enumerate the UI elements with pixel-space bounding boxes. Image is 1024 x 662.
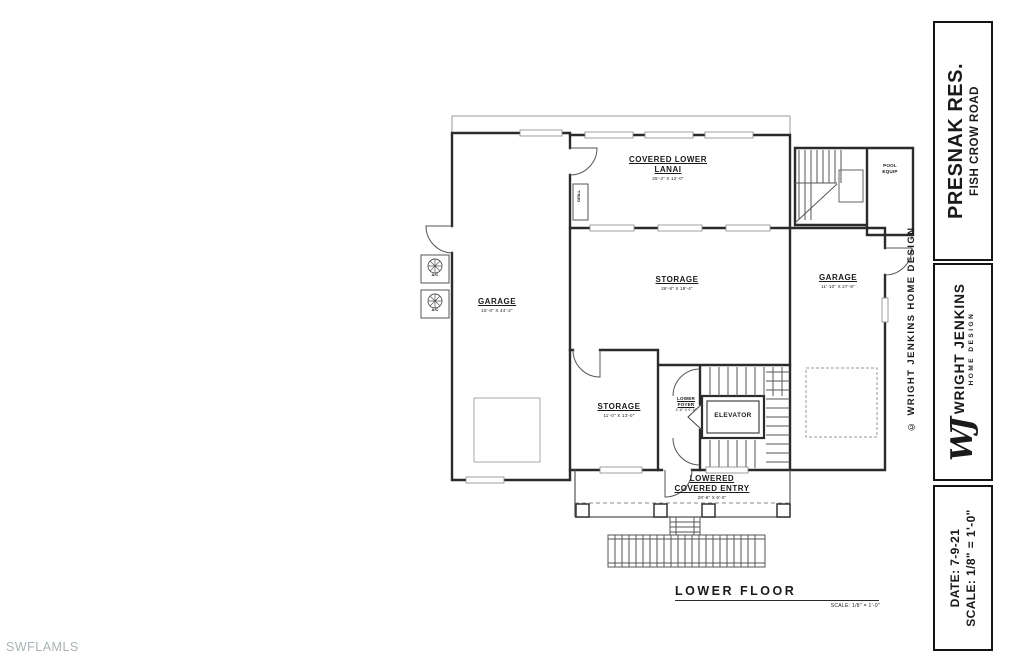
room-label-elevator: ELEVATOR [714,412,752,419]
title-block: PRESNAK RES. FISH CROW ROAD WJ WRIGHT JE… [933,21,993,651]
room-dim: 11'-10" X 27'-8" [793,284,883,289]
storage-door-arc [573,350,600,377]
room-name: STORAGE [574,402,664,412]
firm-tagline: HOME DESIGN [968,312,975,386]
ac-label: A/C [432,272,439,277]
room-dim: 15'-0" X 44'-2" [452,308,542,313]
entry-steps [608,517,765,567]
garage-side-door-arc [426,226,452,253]
room-name: GARAGE [793,273,883,283]
porch-column [654,504,667,517]
room-name: LOWERED COVERED ENTRY [672,474,752,494]
plan-title: LOWER FLOOR [675,584,879,601]
foyer-bottom-door-arc [673,438,700,465]
room-dim: 11'-0" X 13'-0" [574,413,664,418]
porch-column [702,504,715,517]
watermark: SWFLAMLS [6,640,79,654]
floor-plan-linework [0,0,1024,662]
room-dim: 28'-8" X 18'-4" [627,286,727,291]
room-name: LOWER FOYER [673,396,699,407]
room-name: GARAGE [452,297,542,307]
date-label: DATE: 7-9-21 [948,491,962,646]
plan-scale-note: SCALE: 1/8" = 1'-0" [788,603,880,609]
room-label-storage-lower: STORAGE 11'-0" X 13'-0" [574,402,664,418]
room-label-grill: GRILL [576,179,581,213]
ac-label: A/C [432,307,439,312]
room-dim: 4'-6" X 9'-0" [673,408,699,412]
room-name: COVERED LOWER LANAI [628,155,708,175]
project-name: PRESNAK RES. [945,26,968,256]
plan-title-text: LOWER FLOOR [675,584,796,598]
room-label-storage-main: STORAGE 28'-8" X 18'-4" [627,275,727,291]
room-label-entry: LOWERED COVERED ENTRY 28'-6" X 6'-0" [672,474,752,500]
room-label-lower-foyer: LOWER FOYER 4'-6" X 9'-0" [673,396,699,412]
wj-monogram-logo: WJ [948,421,978,461]
room-label-garage-left: GARAGE 15'-0" X 44'-2" [452,297,542,313]
firm-name: WRIGHT JENKINS [952,283,967,414]
copyright-text: © WRIGHT JENKINS HOME DESIGN [906,185,928,473]
scale-label: SCALE: 1/8" = 1'-0" [964,491,978,646]
lanai-door-arc [570,148,597,175]
room-dim: 28'-6" X 6'-0" [672,495,752,500]
room-dim: 25'-2" X 12'-0" [628,176,708,181]
project-address: FISH CROW ROAD [969,26,981,256]
room-name: POOL EQUIP [877,163,903,174]
garage-pads [474,368,877,462]
porch-column [576,504,589,517]
date-scale-box: DATE: 7-9-21 SCALE: 1/8" = 1'-0" [933,485,993,651]
room-label-lanai: COVERED LOWER LANAI 25'-2" X 12'-0" [628,155,708,181]
foyer-top-door-arc [673,369,700,396]
project-title-box: PRESNAK RES. FISH CROW ROAD [933,21,993,261]
room-label-pool-equip: POOL EQUIP [877,163,903,174]
drawing-sheet: COVERED LOWER LANAI 25'-2" X 12'-0" GARA… [0,0,1024,662]
exterior-stair [795,150,863,223]
porch-column [777,504,790,517]
firm-box: WJ WRIGHT JENKINS HOME DESIGN [933,263,993,481]
room-name: STORAGE [627,275,727,285]
room-label-garage-right: GARAGE 11'-10" X 27'-8" [793,273,883,289]
